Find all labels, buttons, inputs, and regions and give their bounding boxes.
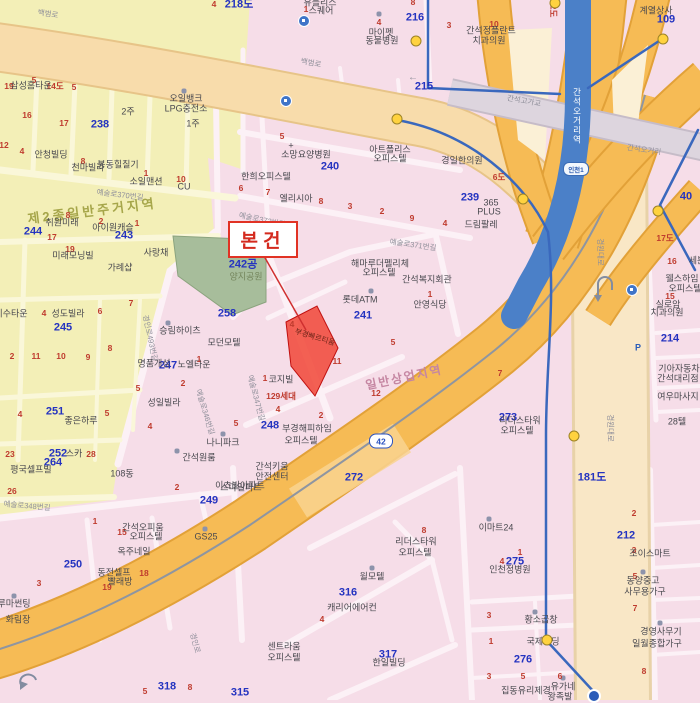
place-label: 봉동힐칠기 bbox=[97, 161, 138, 170]
subway-line-badge: 인천1 bbox=[563, 162, 589, 176]
place-label: 웰스하임 bbox=[665, 275, 698, 284]
place-label: CU bbox=[178, 183, 191, 192]
place-label: 이수타운 bbox=[0, 310, 28, 319]
place-label: 이마트24 bbox=[479, 524, 514, 533]
place-label: 오피스텔 bbox=[373, 155, 406, 164]
lot-number: 11 bbox=[333, 357, 342, 366]
poi-icon[interactable] bbox=[377, 12, 382, 17]
place-label: 유가네 bbox=[551, 683, 576, 692]
parcel-number: 272 bbox=[345, 473, 363, 484]
lot-number: 5 bbox=[391, 338, 396, 347]
place-label: 한일빌딩 bbox=[372, 659, 405, 668]
lot-number: 1 bbox=[135, 219, 140, 228]
place-label: 기아자동차 bbox=[658, 365, 699, 374]
place-label: 안청빌딩 bbox=[34, 151, 67, 160]
park-label: 양지공원 bbox=[229, 273, 262, 282]
bus-stop-icon[interactable] bbox=[569, 431, 580, 442]
place-label: 여우마사지 bbox=[657, 393, 698, 402]
place-label: 간석정플란트 bbox=[466, 27, 516, 36]
parcel-number: 316 bbox=[339, 588, 357, 599]
lot-number: 8 bbox=[188, 683, 193, 692]
place-label: 리더스타워 bbox=[395, 538, 436, 547]
place-label: 오일뱅크 bbox=[169, 95, 202, 104]
place-label: 1주 bbox=[186, 120, 199, 129]
lot-number: 1 bbox=[489, 637, 494, 646]
bus-stop-icon[interactable] bbox=[280, 95, 292, 107]
place-label: 센트라움 bbox=[267, 643, 300, 652]
place-label: 가례샵 bbox=[108, 264, 133, 273]
place-label: 오피스텔 bbox=[284, 437, 317, 446]
parcel-number: 238 bbox=[91, 120, 109, 131]
parcel-number: 212 bbox=[617, 531, 635, 542]
poi-icon[interactable] bbox=[641, 570, 646, 575]
place-label: 108동 bbox=[110, 470, 133, 479]
place-label: 소일맨션 bbox=[129, 178, 162, 187]
place-label: 성일빌라 bbox=[147, 399, 180, 408]
place-label: 오피스텔 bbox=[398, 549, 431, 558]
place-label: 일월종합가구 bbox=[632, 640, 682, 649]
lot-number: 129세대 bbox=[266, 392, 296, 401]
place-label: 안영식당 bbox=[413, 301, 446, 310]
place-label: 사랑채 bbox=[144, 249, 169, 258]
parcel-number: 251 bbox=[46, 407, 64, 418]
place-label: 조이스마트 bbox=[629, 550, 670, 559]
parcel-number: 250 bbox=[64, 560, 82, 571]
lot-number: 8 bbox=[422, 526, 427, 535]
lot-number: 5 bbox=[105, 409, 110, 418]
lot-number: 16 bbox=[22, 111, 31, 120]
place-label: LPG충전소 bbox=[165, 105, 208, 114]
parcel-number: 242공 bbox=[229, 260, 257, 271]
parcel-number: 181도 bbox=[578, 473, 606, 484]
subway-entrance-icon[interactable] bbox=[587, 689, 601, 703]
place-label: 승림하이츠 bbox=[159, 327, 200, 336]
lot-number: 12 bbox=[0, 141, 9, 150]
lot-number: 7 bbox=[129, 299, 134, 308]
lot-number: 4 bbox=[290, 320, 295, 329]
place-label: 명품개성 bbox=[137, 360, 170, 369]
lot-number: 1 bbox=[518, 548, 523, 557]
poi-icon[interactable] bbox=[175, 449, 180, 454]
map-canvas[interactable]: 제2종일반주거지역 일반상업지역 본건 부경빠르티움 간석오거리역 인천1 42… bbox=[0, 0, 700, 700]
place-label: 28텔 bbox=[668, 418, 686, 427]
bus-stop-icon[interactable] bbox=[653, 206, 664, 217]
lot-number: 11 bbox=[32, 352, 41, 361]
lot-number: 9 bbox=[86, 353, 91, 362]
lot-number: 3 bbox=[348, 202, 353, 211]
place-label: 화림장 bbox=[6, 616, 31, 625]
lot-number: 4 bbox=[443, 219, 448, 228]
lot-number: 3 bbox=[487, 611, 492, 620]
place-label: 세븐 bbox=[689, 257, 700, 266]
place-label: 롯데ATM bbox=[343, 296, 378, 305]
place-label: 스마일파트 bbox=[220, 484, 261, 493]
bus-stop-icon[interactable] bbox=[411, 36, 422, 47]
lot-number: 2 bbox=[319, 411, 324, 420]
place-label: 계열상사 bbox=[639, 7, 672, 16]
parcel-number: 216 bbox=[406, 13, 424, 24]
lot-number: 8 bbox=[411, 0, 416, 6]
place-label: 황소곱창 bbox=[524, 616, 557, 625]
place-label: 동양중고 bbox=[626, 577, 659, 586]
lot-number: 2 bbox=[380, 207, 385, 216]
place-label: 오피스텔 bbox=[362, 269, 395, 278]
lot-number: 12 bbox=[371, 389, 380, 398]
lot-number: 6 bbox=[239, 184, 244, 193]
lot-number: 2 bbox=[181, 379, 186, 388]
place-label: 간석원룸 bbox=[182, 454, 215, 463]
place-label: 윌모텔 bbox=[360, 573, 385, 582]
place-label: 스카 bbox=[66, 450, 83, 459]
lot-number: 2 bbox=[632, 509, 637, 518]
lot-number: 6도 bbox=[493, 173, 506, 182]
lot-number: 17 bbox=[59, 119, 68, 128]
lot-number: 6 bbox=[558, 672, 563, 681]
map-app: { "map": { "subject": { "label": "본건", "… bbox=[0, 0, 700, 700]
lot-number: 4 bbox=[20, 147, 25, 156]
lot-number: 1 bbox=[263, 374, 268, 383]
place-label: 삼성홈타운 bbox=[10, 82, 51, 91]
poi-icon[interactable] bbox=[369, 289, 374, 294]
parking-label: P bbox=[635, 344, 641, 353]
parcel-number: 258 bbox=[218, 309, 236, 320]
place-label: 모던모텔 bbox=[207, 339, 240, 348]
place-label: 왕족발 bbox=[548, 693, 573, 702]
bus-stop-icon[interactable] bbox=[518, 194, 529, 205]
lot-number: 5 bbox=[234, 419, 239, 428]
bus-stop-icon[interactable] bbox=[626, 284, 638, 296]
place-label: 성도빌라 bbox=[51, 310, 84, 319]
road-label: 경원대로 bbox=[596, 238, 604, 266]
place-label: 좋은하루 bbox=[64, 417, 97, 426]
place-label: 치과의원 bbox=[650, 309, 683, 318]
lot-number: 18 bbox=[139, 569, 148, 578]
lot-number: 6 bbox=[98, 307, 103, 316]
subject-marker: 본건 bbox=[228, 221, 298, 258]
poi-icon[interactable] bbox=[221, 432, 226, 437]
place-label: 미래모닝빌 bbox=[52, 252, 93, 261]
lot-number: 1 bbox=[428, 290, 433, 299]
lot-number: 4 bbox=[377, 18, 382, 27]
place-label: 노엘타운 bbox=[177, 361, 210, 370]
lot-number: 7 bbox=[633, 604, 638, 613]
parcel-number: 239 bbox=[461, 193, 479, 204]
poi-icon[interactable] bbox=[370, 566, 375, 571]
lot-number: 5 bbox=[72, 83, 77, 92]
place-label: 아이원캐슬 bbox=[92, 224, 133, 233]
lot-number: 5 bbox=[521, 672, 526, 681]
place-label: 경영사무기 bbox=[640, 628, 681, 637]
place-label: 루마썬팅 bbox=[0, 600, 31, 609]
lot-number: 7 bbox=[266, 188, 271, 197]
parcel-number: 240 bbox=[321, 162, 339, 173]
parcel-number: 244 bbox=[24, 227, 42, 238]
parcel-number: 315 bbox=[231, 688, 249, 699]
parcel-number: 318 bbox=[158, 682, 176, 693]
parcel-number: 215 bbox=[415, 82, 433, 93]
poi-icon[interactable] bbox=[658, 621, 663, 626]
lot-number: 4 bbox=[42, 309, 47, 318]
place-label: 오피스텔 bbox=[267, 654, 300, 663]
poi-icon[interactable] bbox=[487, 517, 492, 522]
lot-number: 23 bbox=[5, 450, 14, 459]
bus-stop-icon[interactable] bbox=[658, 34, 669, 45]
place-label: 사무용가구 bbox=[624, 588, 665, 597]
lot-number: 8 bbox=[642, 667, 647, 676]
lot-number: 4 bbox=[212, 0, 217, 8]
parcel-number: 249 bbox=[200, 496, 218, 507]
place-label: 부경해피하임 bbox=[282, 425, 332, 434]
route-42-shield: 42 bbox=[369, 434, 393, 449]
subway-station-label: 간석오거리역 bbox=[571, 88, 583, 145]
place-label: 인천정병원 bbox=[489, 566, 530, 575]
lot-number: 17도 bbox=[656, 234, 673, 243]
place-label: 엘리시아 bbox=[279, 195, 312, 204]
place-label: 캐리어에어컨 bbox=[327, 604, 377, 613]
lot-number: 2 bbox=[10, 352, 15, 361]
lot-number: 16 bbox=[667, 257, 676, 266]
place-label: 스퀘어 bbox=[309, 7, 334, 16]
place-label: 경일한의원 bbox=[441, 157, 482, 166]
parcel-number: 276 bbox=[514, 655, 532, 666]
lot-number: 3 bbox=[37, 579, 42, 588]
lot-number: 3 bbox=[487, 672, 492, 681]
lot-number: 5 bbox=[136, 384, 141, 393]
place-label: 옥주네일 bbox=[117, 548, 150, 557]
place-label: 코지빌 bbox=[269, 376, 294, 385]
place-label: 오피스텔 bbox=[500, 427, 533, 436]
bus-stop-icon[interactable] bbox=[392, 114, 403, 125]
place-label: 간석대리점 bbox=[657, 375, 698, 384]
place-label: 간석키움 bbox=[255, 463, 288, 472]
lot-number: 26 bbox=[7, 487, 16, 496]
lot-number: 4 bbox=[18, 410, 23, 419]
place-label: + bbox=[288, 142, 293, 151]
parcel-number: 241 bbox=[354, 311, 372, 322]
bus-stop-icon[interactable] bbox=[542, 635, 553, 646]
lot-number: 2 bbox=[175, 483, 180, 492]
parcel-number: 109 bbox=[657, 15, 675, 26]
place-label: PLUS bbox=[477, 208, 501, 217]
place-label: 집동유리제경 bbox=[501, 687, 551, 696]
lot-number: 3 bbox=[447, 21, 452, 30]
place-label: 한희오피스텔 bbox=[241, 173, 291, 182]
place-label: 오피스텔 bbox=[129, 533, 162, 542]
place-label: 오피스텔 bbox=[668, 285, 700, 294]
lot-number: 17 bbox=[47, 233, 56, 242]
road-label: 경원대로 bbox=[606, 414, 614, 442]
place-label: 나니파크 bbox=[206, 439, 239, 448]
lot-number: 5 bbox=[143, 687, 148, 696]
lot-number: 28 bbox=[86, 450, 95, 459]
lot-number: 7 bbox=[498, 369, 503, 378]
parcel-number: 218도 bbox=[225, 0, 253, 11]
place-label: 안전센터 bbox=[255, 473, 288, 482]
lot-number: 4 bbox=[320, 615, 325, 624]
lot-number: 4 bbox=[276, 405, 281, 414]
lot-number: 5 bbox=[280, 132, 285, 141]
place-label: 2주 bbox=[121, 108, 134, 117]
place-label: 소망요양병원 bbox=[281, 151, 331, 160]
lot-number: 8 bbox=[319, 197, 324, 206]
place-label: 치과의원 bbox=[472, 37, 505, 46]
lot-number: 10 bbox=[56, 352, 65, 361]
parcel-number: 214 bbox=[661, 334, 679, 345]
lot-number: 1 bbox=[93, 517, 98, 526]
place-label: 평국셀프빌 bbox=[10, 466, 51, 475]
parcel-number: 245 bbox=[54, 323, 72, 334]
place-label: 간석복지회관 bbox=[402, 276, 452, 285]
place-label: 취원미래 bbox=[45, 219, 78, 228]
bus-stop-icon[interactable] bbox=[298, 15, 310, 27]
lot-number: 8 bbox=[108, 344, 113, 353]
lot-number: 4 bbox=[148, 422, 153, 431]
place-label: 드림팔레 bbox=[464, 221, 497, 230]
place-label: 리더스타워 bbox=[499, 417, 540, 426]
parcel-number: 40 bbox=[680, 192, 692, 203]
place-label: GS25 bbox=[194, 533, 217, 542]
parcel-number: 248 bbox=[261, 421, 279, 432]
place-label: 동물병원 bbox=[365, 37, 398, 46]
place-label: 빨래방 bbox=[108, 578, 133, 587]
lot-number: 9 bbox=[410, 214, 415, 223]
